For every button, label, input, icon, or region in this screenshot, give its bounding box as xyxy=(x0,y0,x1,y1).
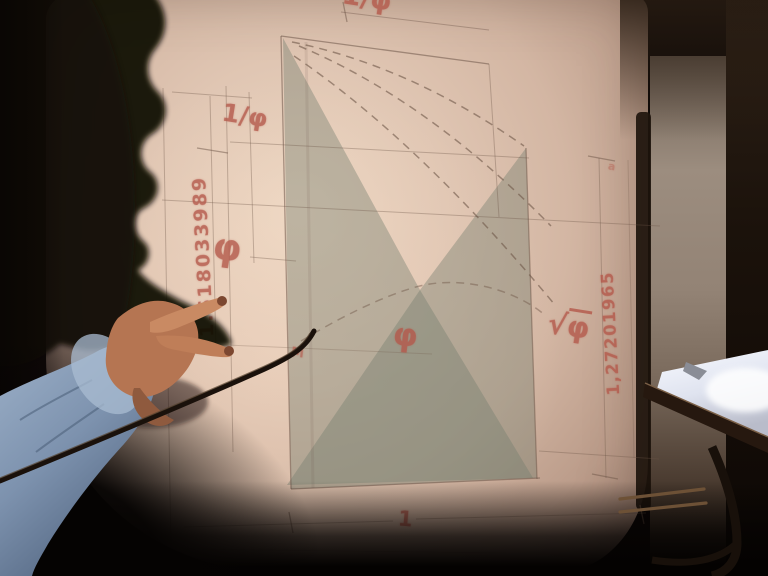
presenter-layer xyxy=(0,0,768,576)
fingertip-lower xyxy=(224,346,234,356)
fingertip-upper xyxy=(217,296,227,306)
photo-lecture-projection: { "diagram": { "labels": { "top_clipped"… xyxy=(0,0,768,576)
